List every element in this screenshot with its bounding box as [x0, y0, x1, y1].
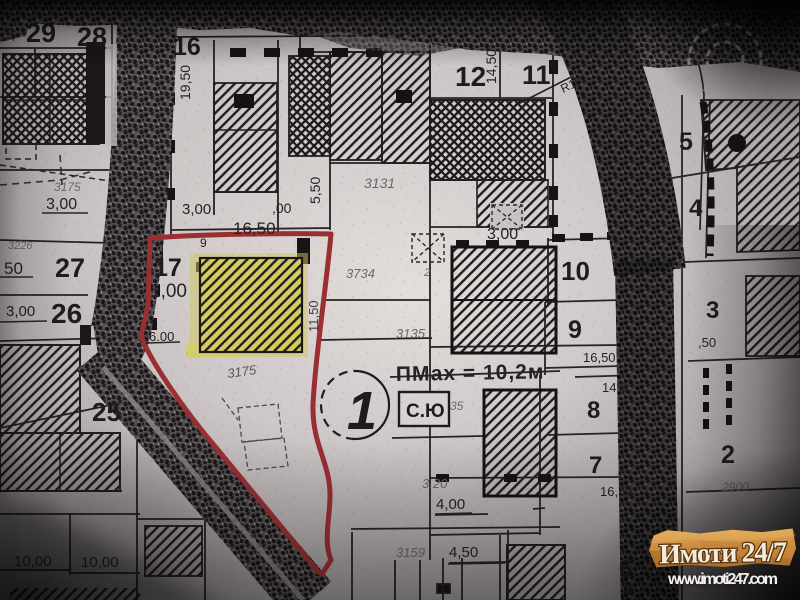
- svg-text:www.imoti247.com: www.imoti247.com: [667, 571, 778, 588]
- svg-text:Имоти 24/7: Имоти 24/7: [659, 537, 788, 571]
